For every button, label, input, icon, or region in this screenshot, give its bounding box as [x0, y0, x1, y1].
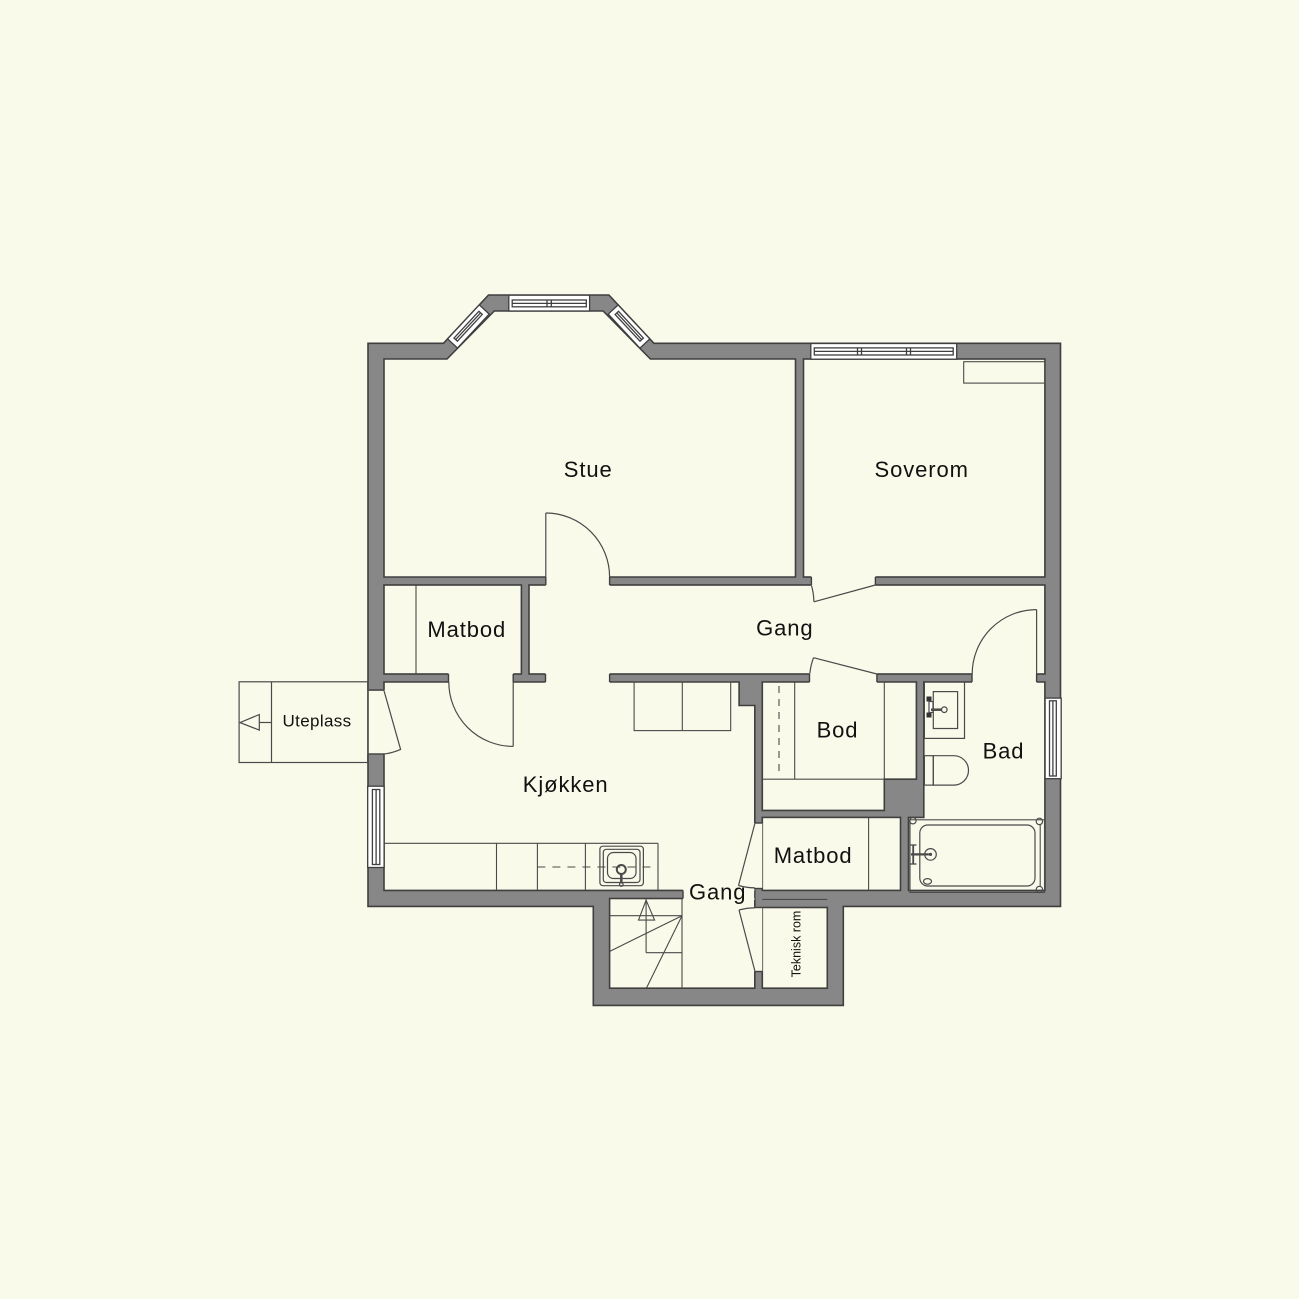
svg-text:Gang: Gang — [689, 880, 746, 905]
svg-text:Soverom: Soverom — [875, 457, 969, 482]
svg-text:Uteplass: Uteplass — [283, 712, 352, 731]
svg-text:Kjøkken: Kjøkken — [523, 772, 609, 797]
svg-text:Matbod: Matbod — [774, 843, 853, 868]
svg-text:Bod: Bod — [817, 718, 859, 743]
svg-text:Matbod: Matbod — [427, 617, 506, 642]
svg-text:Stue: Stue — [564, 457, 613, 482]
svg-text:Teknisk rom: Teknisk rom — [789, 911, 803, 978]
svg-text:Gang: Gang — [756, 616, 813, 641]
svg-text:Bad: Bad — [983, 739, 1025, 764]
